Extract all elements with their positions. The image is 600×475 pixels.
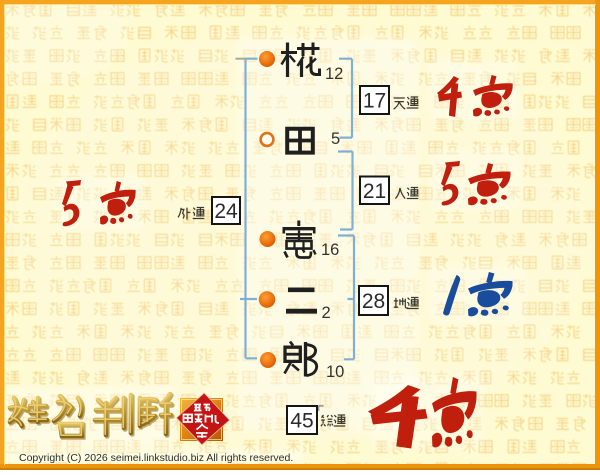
svg-text:10: 10 (326, 363, 344, 381)
svg-text:5: 5 (331, 130, 340, 148)
svg-text:16: 16 (321, 241, 339, 259)
svg-text:2: 2 (322, 304, 331, 322)
svg-text:24: 24 (214, 200, 238, 223)
svg-text:17: 17 (363, 90, 386, 113)
svg-text:45: 45 (290, 410, 313, 433)
svg-text:Copyright (C) 2026 seimei.link: Copyright (C) 2026 seimei.linkstudio.biz… (19, 452, 293, 464)
svg-text:12: 12 (325, 65, 343, 83)
svg-text:28: 28 (362, 290, 385, 313)
svg-text:21: 21 (363, 180, 386, 203)
